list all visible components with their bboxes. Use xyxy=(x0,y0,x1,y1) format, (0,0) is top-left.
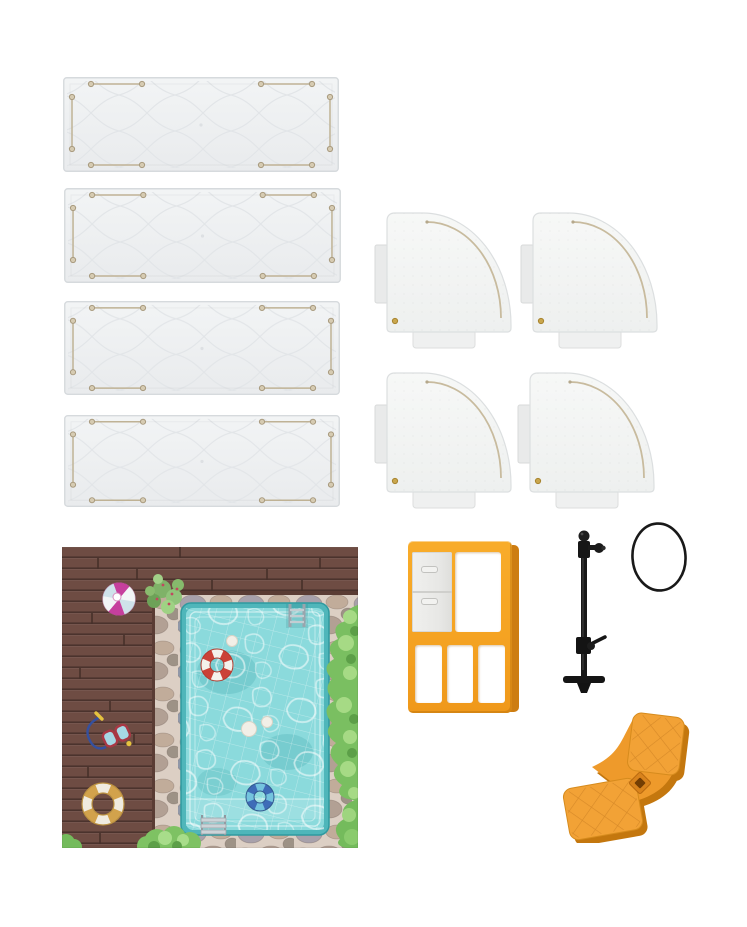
shutter-handle-top xyxy=(421,566,438,573)
shutter-handle-bottom xyxy=(421,598,438,605)
quarter-panel-2 xyxy=(519,209,661,351)
window-opening-bottom-3 xyxy=(478,645,505,703)
window-opening-top xyxy=(455,552,501,632)
quarter-panel-3 xyxy=(373,369,515,511)
sliding-shutter xyxy=(412,552,452,632)
pool-steps xyxy=(201,815,226,835)
curved-slide xyxy=(558,703,708,843)
window-opening-bottom-2 xyxy=(447,645,473,703)
elastic-ring xyxy=(628,519,690,595)
beach-ball xyxy=(102,583,135,616)
pool-ladder xyxy=(286,604,308,628)
shutter-split-line xyxy=(412,591,452,593)
slide-top-pad xyxy=(627,712,686,776)
wall-panel-3 xyxy=(64,301,340,395)
window-frame xyxy=(408,541,520,715)
shower-pole xyxy=(555,525,615,695)
window-opening-bottom-1 xyxy=(415,645,442,703)
wall-panel-4 xyxy=(64,415,340,507)
quarter-panel-4 xyxy=(516,369,658,511)
product-parts-photo xyxy=(0,0,747,927)
quarter-panel-1 xyxy=(373,209,515,351)
wall-panel-2 xyxy=(64,188,341,283)
frame-front-face xyxy=(408,541,512,713)
wall-panel-1 xyxy=(63,77,339,172)
pool-mat xyxy=(62,547,358,848)
